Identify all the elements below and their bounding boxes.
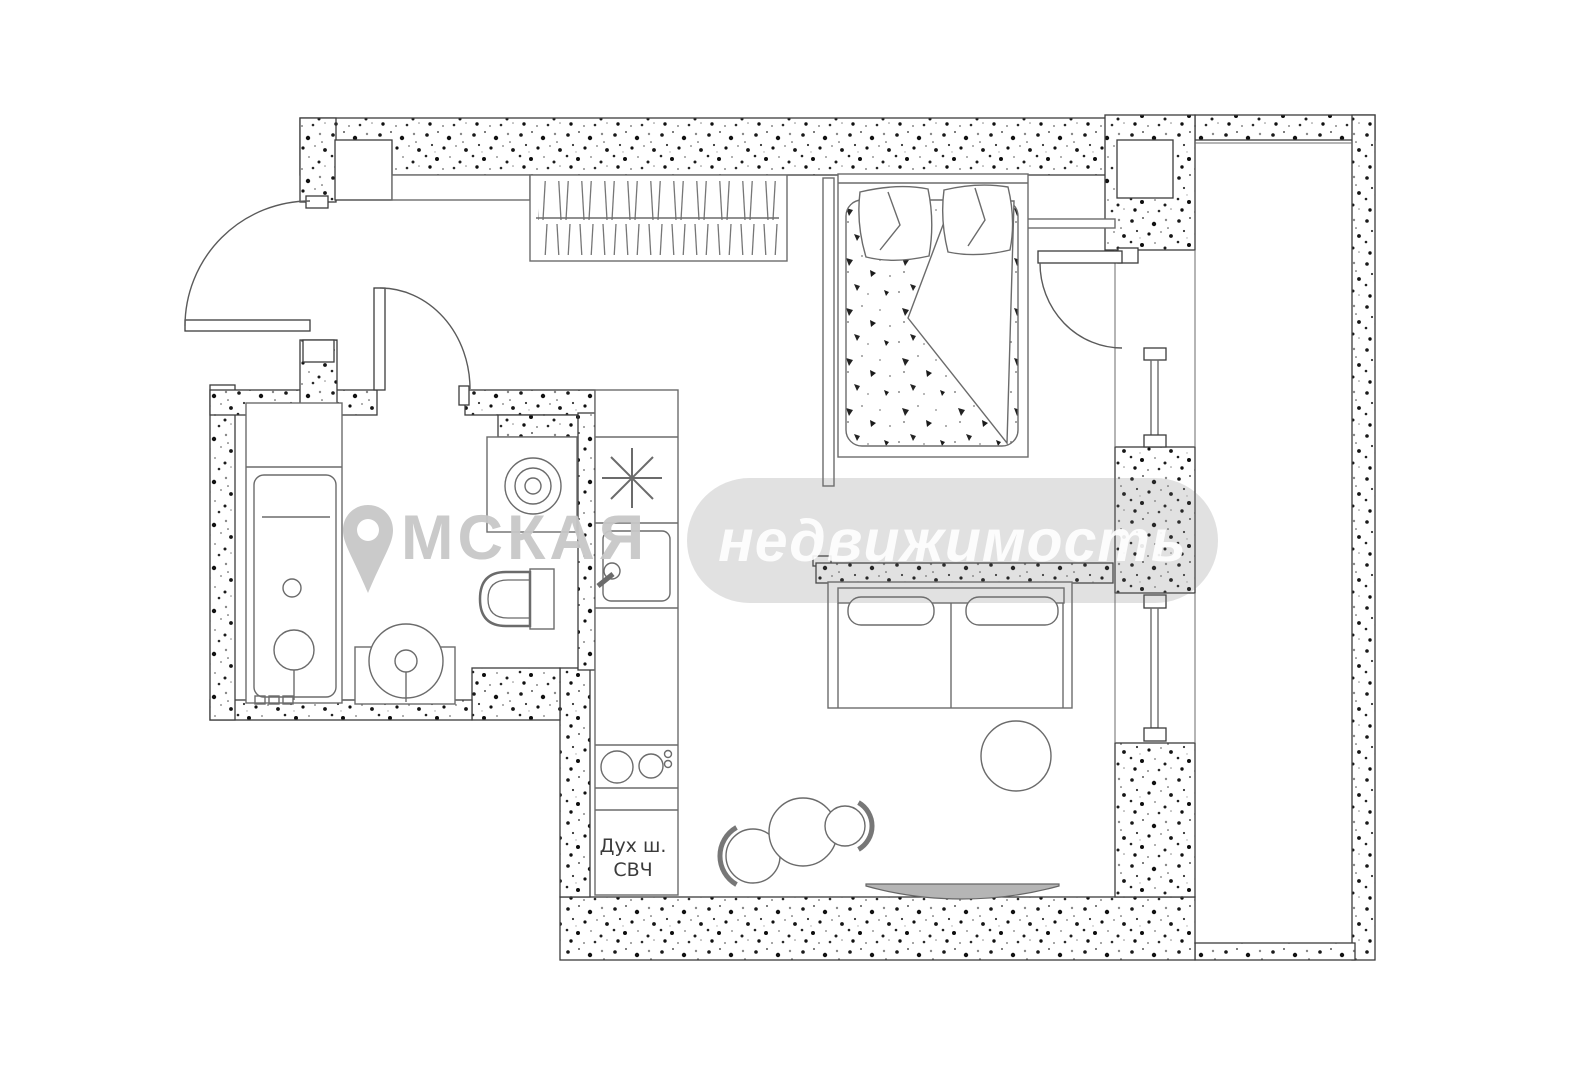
window-bedroom	[1144, 348, 1166, 447]
bathtub-outer	[246, 403, 342, 703]
sofa-cushion	[966, 597, 1058, 625]
wall-inset-box	[335, 140, 392, 200]
window-cap	[1144, 348, 1166, 360]
living-furniture	[720, 556, 1113, 899]
bar-counter	[816, 563, 1113, 583]
entry-post-notch	[303, 340, 334, 362]
window-cap	[1144, 728, 1166, 741]
kitchen-cabinet-column	[595, 390, 678, 895]
floor-plan-svg: Дух ш. СВЧ	[0, 0, 1572, 1080]
bathroom-door-swing-arc	[380, 288, 470, 389]
microwave-label: СВЧ	[613, 859, 652, 881]
bathtub	[246, 403, 342, 704]
refrigerator	[602, 448, 662, 508]
balcony-door-leaf	[1038, 251, 1122, 263]
bottom-wall	[560, 897, 1195, 960]
right-outer-wall	[1352, 115, 1375, 960]
wardrobe	[530, 175, 787, 261]
bathroom-left-wall	[210, 385, 235, 720]
washing-machine	[487, 437, 577, 532]
floor-plan-page: Дух ш. СВЧ	[0, 0, 1572, 1080]
balcony-top-wall	[1195, 115, 1375, 140]
sofa	[828, 582, 1072, 708]
window-living	[1144, 595, 1166, 741]
window-cap	[1144, 435, 1166, 447]
balcony-door-swing-arc	[1040, 263, 1122, 348]
window-post-middle	[1115, 447, 1195, 593]
oven-label: Дух ш.	[600, 835, 667, 857]
bathroom-top-wall-right	[465, 390, 595, 415]
bedside-ledge	[1022, 219, 1115, 228]
window-mullion	[1151, 608, 1158, 728]
bathroom-door-jamb	[459, 386, 469, 405]
balcony-bottom-wall	[1195, 943, 1355, 960]
kitchen-run: Дух ш. СВЧ	[595, 390, 678, 895]
bathroom-door-leaf	[374, 288, 385, 390]
snowflake-icon	[602, 448, 662, 508]
hall-cabinet	[392, 175, 530, 200]
washing-machine-body	[487, 437, 577, 532]
entrance-door-swing-arc	[185, 201, 310, 326]
partition-rail	[823, 178, 834, 486]
pedestal-sink	[355, 624, 455, 704]
entrance-door-leaf	[185, 320, 310, 331]
window-mullion	[1151, 360, 1158, 436]
pillow-left	[859, 187, 932, 261]
chairs-set	[720, 798, 872, 885]
chair-seat	[825, 806, 865, 846]
bathroom-door	[374, 288, 470, 390]
top-wall-left-end	[300, 118, 336, 202]
toilet-tank	[530, 569, 554, 629]
top-wall	[300, 118, 1115, 175]
entrance-door	[185, 201, 310, 331]
kitchen-side-wall	[560, 668, 590, 897]
pier-inner-notch	[1117, 140, 1173, 198]
window-post-lower	[1115, 743, 1195, 897]
kitchen-divider-wall	[578, 413, 595, 670]
toilet	[480, 569, 554, 629]
bathroom-fixtures	[246, 403, 577, 704]
entrance-door-jamb	[306, 196, 328, 208]
bathroom-corner-block	[472, 668, 560, 720]
sofa-cushion	[848, 597, 934, 625]
window-cap	[1144, 595, 1166, 608]
double-bed	[838, 174, 1028, 457]
balcony-door	[1038, 251, 1122, 348]
coffee-table	[981, 721, 1051, 791]
